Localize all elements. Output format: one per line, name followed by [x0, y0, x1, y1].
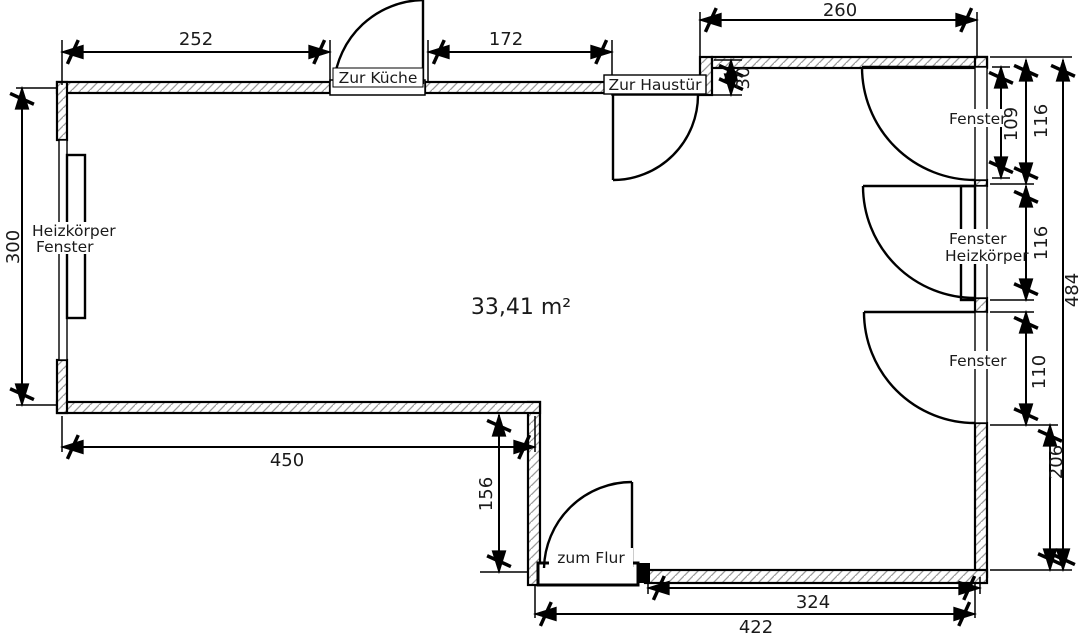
dim-label-422: 422	[739, 617, 773, 638]
dim-label-110: 110	[1029, 355, 1050, 389]
dim-label-156: 156	[476, 477, 497, 511]
window-right2-label-line2: Heizkörper	[945, 247, 1029, 265]
door-hall-label: zum Flur	[557, 549, 625, 567]
dim-label-206: 206	[1046, 445, 1067, 479]
wall-right-seg-d[interactable]	[975, 423, 987, 577]
wall-top-left-a[interactable]	[57, 82, 330, 93]
dim-label-116b: 116	[1031, 226, 1052, 260]
window-left-label-line2: Fenster	[36, 238, 94, 256]
wall-notch-vertical[interactable]	[528, 402, 540, 585]
door-front-arc	[613, 95, 698, 180]
wall-bottom-right[interactable]	[645, 570, 987, 583]
dim-label-30: 30	[733, 67, 754, 90]
dim-label-260: 260	[823, 0, 857, 21]
wall-bottom-left[interactable]	[57, 402, 540, 413]
wall-left-seg-a[interactable]	[57, 82, 67, 140]
wall-right-seg-c[interactable]	[975, 298, 987, 312]
dim-label-116a: 116	[1031, 104, 1052, 138]
dim-label-252: 252	[179, 29, 213, 50]
window-right2-label-line1: Fenster	[949, 230, 1007, 248]
dim-label-484: 484	[1062, 273, 1083, 307]
window-right3-label: Fenster	[949, 352, 1007, 370]
floor-plan: 252 172 260 30 300 450 156 109 116 116 1…	[0, 0, 1087, 642]
window-right1-label: Fenster	[949, 110, 1007, 128]
wall-left-seg-b[interactable]	[57, 360, 67, 413]
wall-top-left-b[interactable]	[425, 82, 612, 93]
door-kitchen-label: Zur Küche	[339, 69, 418, 87]
room-area-label: 33,41 m²	[471, 295, 571, 320]
dim-label-324: 324	[796, 592, 830, 613]
wall-right-seg-b[interactable]	[975, 180, 987, 186]
dim-label-450: 450	[270, 450, 304, 471]
dim-label-172: 172	[489, 29, 523, 50]
door-front-label: Zur Haustür	[608, 76, 702, 94]
wall-right-seg-a[interactable]	[975, 57, 987, 67]
dim-label-300: 300	[3, 230, 24, 264]
